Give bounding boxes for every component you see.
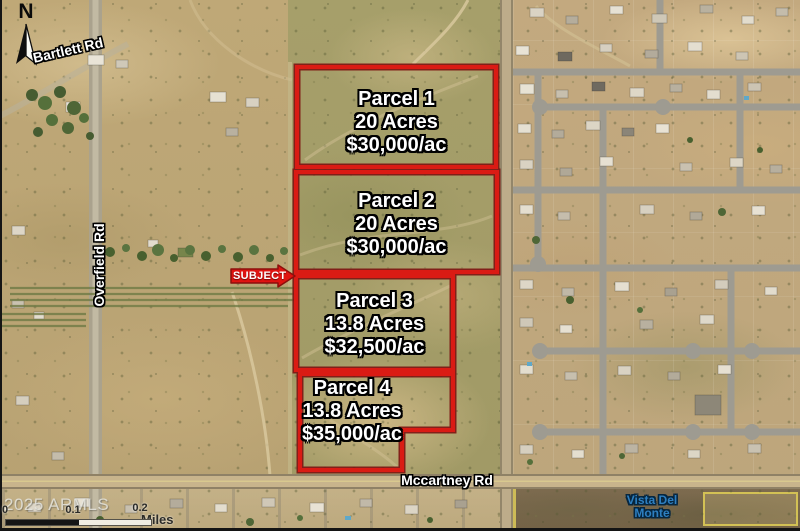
parcel-1-price: $30,000/ac — [297, 134, 496, 157]
compass-north-label: N — [6, 2, 46, 22]
parcel-3-name: Parcel 3 — [296, 290, 453, 313]
armls-watermark: 2025 ARMLS — [4, 495, 109, 515]
subject-marker-label: SUBJECT — [233, 269, 278, 283]
parcel-3-size: 13.8 Acres — [296, 313, 453, 336]
parcel-4-name: Parcel 4 — [294, 377, 410, 400]
subject-marker: SUBJECT — [230, 262, 296, 289]
parcel-3-price: $32,500/ac — [296, 336, 453, 359]
scale-bar — [5, 519, 152, 526]
parcel-2-label: Parcel 2 20 Acres $30,000/ac — [296, 190, 497, 259]
road-label-mccartney: Mccartney Rd — [377, 472, 517, 488]
aerial-parcel-map: Parcel 1 20 Acres $30,000/ac Parcel 2 20… — [0, 0, 800, 531]
parcel-4-price: $35,000/ac — [294, 423, 410, 446]
scale-tick-0: 0 — [0, 504, 11, 516]
parcel-1-name: Parcel 1 — [297, 88, 496, 111]
scale-bar-dark-segment — [6, 520, 79, 525]
parcel-1-size: 20 Acres — [297, 111, 496, 134]
parcel-1-label: Parcel 1 20 Acres $30,000/ac — [297, 88, 496, 157]
parcel-2-size: 20 Acres — [296, 213, 497, 236]
parcel-2-name: Parcel 2 — [296, 190, 497, 213]
parcel-2-price: $30,000/ac — [296, 236, 497, 259]
parcel-outline-layer — [0, 0, 800, 531]
road-label-overfield: Overfield Rd — [91, 220, 107, 310]
scale-tick-01: 0.1 — [58, 504, 88, 516]
parcel-4-size: 13.8 Acres — [294, 400, 410, 423]
vista-del-monte-label: Vista Del Monte — [600, 494, 704, 520]
vista-label-line2: Monte — [600, 507, 704, 520]
parcel-3-label: Parcel 3 13.8 Acres $32,500/ac — [296, 290, 453, 359]
parcel-4-label: Parcel 4 13.8 Acres $35,000/ac — [294, 377, 410, 446]
scale-bar-light-segment — [79, 520, 152, 525]
